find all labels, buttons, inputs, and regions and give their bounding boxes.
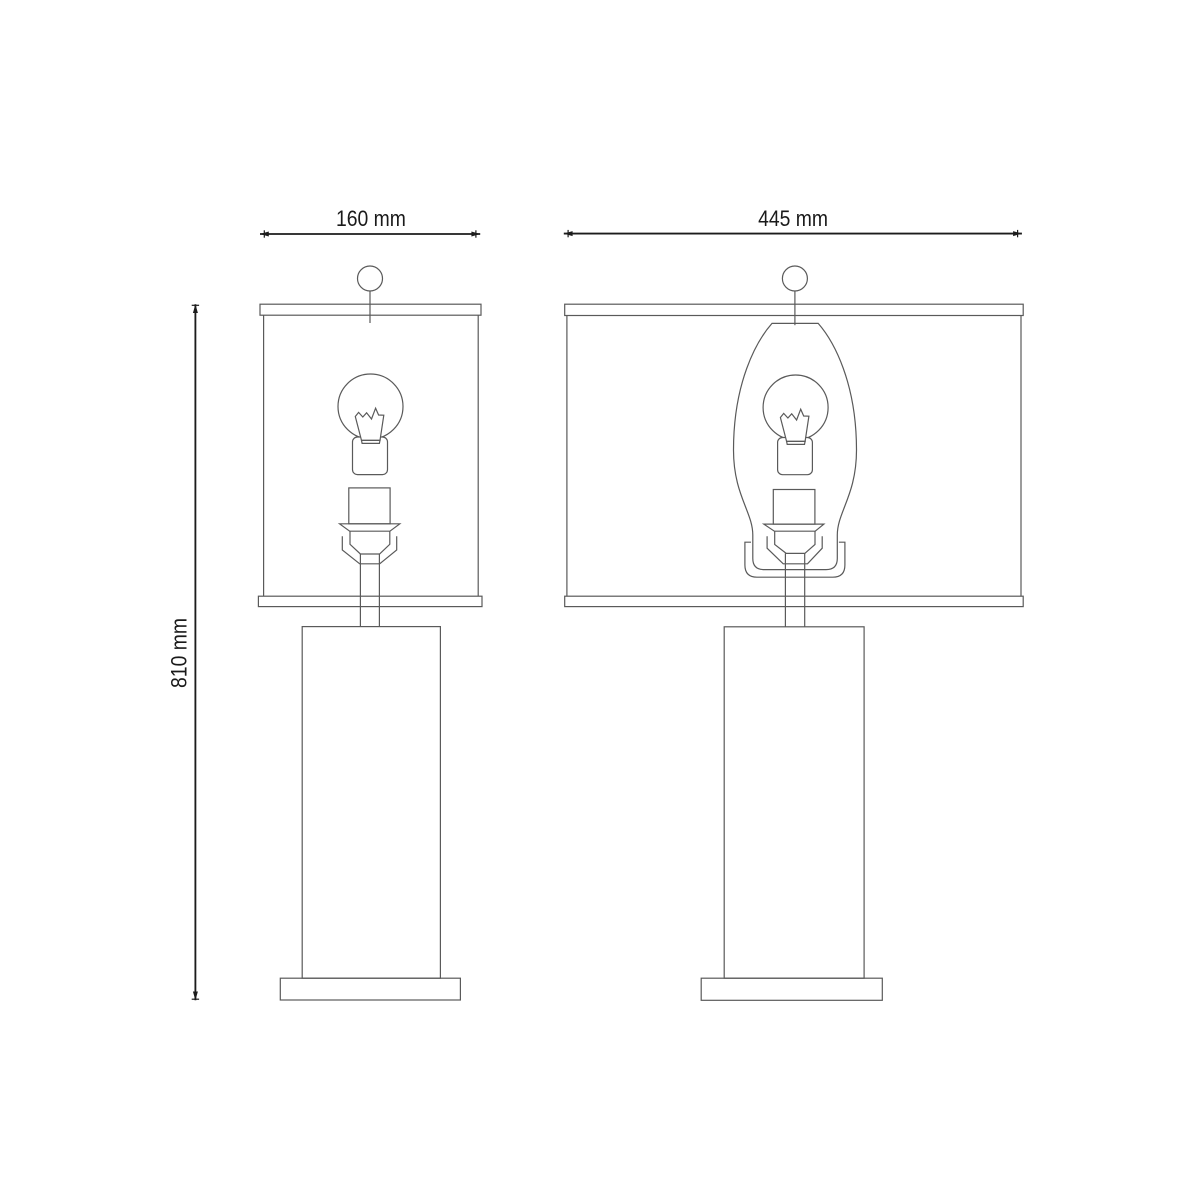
svg-text:160 mm: 160 mm: [336, 207, 406, 231]
svg-text:810 mm: 810 mm: [167, 618, 191, 688]
svg-text:445 mm: 445 mm: [758, 207, 828, 231]
